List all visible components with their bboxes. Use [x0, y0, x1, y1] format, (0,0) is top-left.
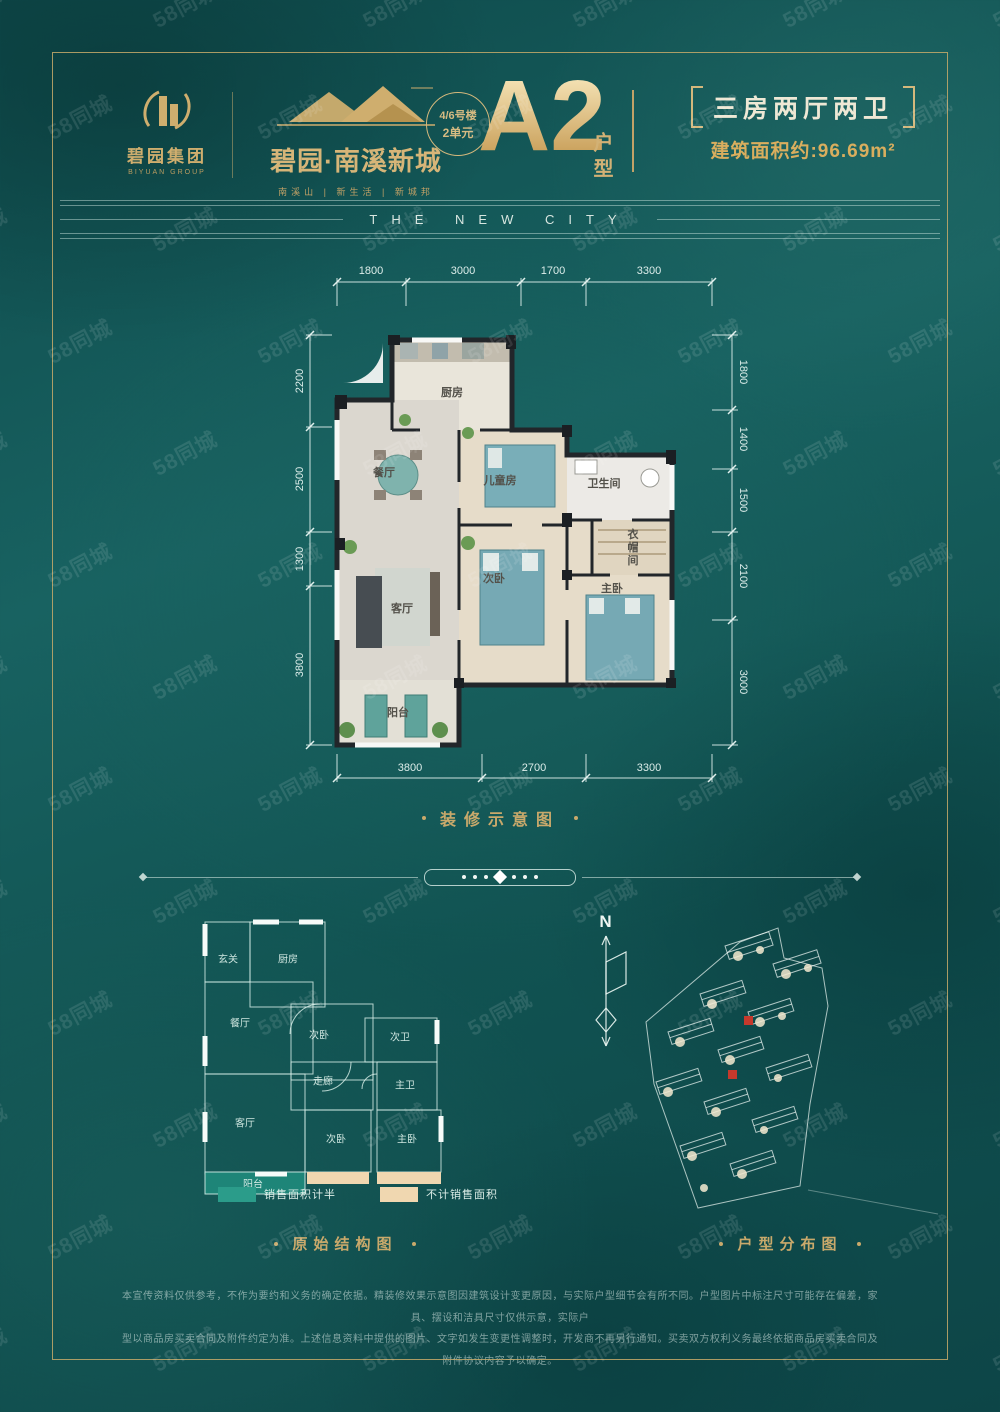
decorated-floor-plan: 1800 3000 1700 3300 2200 2500 1300 3800 … — [280, 250, 750, 810]
bracket-left — [691, 86, 703, 128]
project-tagline: 南溪山 | 新生活 | 新城邦 — [244, 185, 468, 198]
ornament-divider — [140, 866, 860, 888]
legend-label-non-sale: 不计销售面积 — [426, 1186, 498, 1202]
disclaimer: 本宣传资料仅供参考，不作为要约和义务的确定依据。精装修效果示意图因建筑设计变更原… — [118, 1286, 882, 1372]
site-plan — [640, 924, 940, 1216]
developer-logo-icon — [139, 82, 195, 138]
dim-right-3: 1500 — [737, 488, 749, 512]
struct-label-bedroom-bottom: 次卧 — [326, 1131, 346, 1146]
mountains-icon — [271, 80, 441, 132]
bracket-right — [903, 86, 915, 128]
decorated-plan-caption: 装修示意图 — [0, 806, 1000, 830]
legend-item-non-sale: 不计销售面积 — [380, 1186, 498, 1202]
site-plan-caption: 户型分布图 — [640, 1233, 940, 1254]
legend-swatch-half-sale — [218, 1187, 256, 1202]
dim-right-4: 2100 — [737, 564, 749, 588]
room-label-dining: 餐厅 — [373, 464, 395, 480]
room-configuration: 三房两厅两卫 — [713, 89, 893, 125]
highlighted-units — [728, 1016, 753, 1079]
dim-top-1: 1800 — [359, 265, 383, 277]
plan-code-label: 户型 — [594, 132, 616, 184]
dim-right-1: 1800 — [737, 360, 749, 384]
dim-bottom-2: 2700 — [522, 762, 546, 774]
floor-plan-graphic — [280, 250, 750, 810]
room-label-balcony: 阳台 — [387, 704, 409, 720]
entry-door-arc — [343, 343, 383, 383]
banner-strip: THE NEW CITY — [60, 200, 940, 239]
struct-label-bedroom-mid: 次卧 — [309, 1027, 329, 1042]
struct-label-master: 主卧 — [397, 1131, 417, 1146]
structure-plan-caption-text: 原始结构图 — [292, 1233, 397, 1254]
dim-right-5: 3000 — [737, 670, 749, 694]
non-sale-areas — [307, 1172, 441, 1184]
dim-bottom-1: 3800 — [398, 762, 422, 774]
room-label-bathroom: 卫生间 — [588, 475, 621, 491]
struct-label-corridor: 走廊 — [313, 1073, 333, 1088]
room-label-kitchen: 厨房 — [441, 384, 463, 400]
decorated-plan-caption-text: 装修示意图 — [440, 806, 560, 830]
divider-capsule — [424, 869, 576, 886]
area-legend: 销售面积计半 不计销售面积 — [218, 1186, 498, 1202]
struct-label-dining: 餐厅 — [230, 1015, 250, 1030]
unit-number: 2单元 — [443, 124, 474, 141]
developer-name-en: BIYUAN GROUP — [108, 169, 226, 176]
legend-swatch-non-sale — [380, 1187, 418, 1202]
site-tree-blobs — [663, 946, 812, 1192]
room-label-master-bedroom: 主卧 — [601, 580, 623, 596]
disclaimer-line-2: 型以商品房买卖合同及附件约定为准。上述信息资料中提供的图片、文字如发生变更性调整… — [118, 1329, 882, 1372]
site-plan-graphic — [640, 924, 940, 1216]
struct-label-kitchen: 厨房 — [278, 951, 298, 966]
legend-label-half-sale: 销售面积计半 — [264, 1186, 336, 1202]
struct-label-bath-master: 主卫 — [395, 1077, 415, 1092]
buildings — [656, 932, 821, 1177]
header: 碧园集团 BIYUAN GROUP 碧园·南溪新城 南溪山 | 新生活 | 新城… — [60, 80, 940, 198]
dim-left-3: 1300 — [294, 547, 306, 571]
room-label-second-bedroom: 次卧 — [483, 570, 505, 586]
dim-right-2: 1400 — [737, 427, 749, 451]
plan-spec: 三房两厅两卫 建筑面积约:96.69m² — [656, 84, 950, 163]
struct-label-bath-second: 次卫 — [390, 1029, 410, 1044]
header-divider-1 — [232, 92, 233, 178]
structure-plan: 玄关 厨房 餐厅 次卧 次卫 走廊 主卫 客厅 次卧 主卧 阳台 — [195, 916, 455, 1201]
north-indicator: N — [583, 912, 629, 1052]
struct-label-living: 客厅 — [235, 1115, 255, 1130]
north-arrow-icon — [583, 932, 629, 1050]
diamond-ornament — [493, 870, 507, 884]
structure-plan-caption: 原始结构图 — [195, 1233, 495, 1254]
disclaimer-line-1: 本宣传资料仅供参考，不作为要约和义务的确定依据。精装修效果示意图因建筑设计变更原… — [118, 1286, 882, 1329]
dim-left-1: 2200 — [294, 369, 306, 393]
dim-left-4: 3800 — [294, 653, 306, 677]
dim-top-4: 3300 — [637, 265, 661, 277]
north-label: N — [583, 912, 629, 932]
dim-left-2: 2500 — [294, 467, 306, 491]
dim-top-3: 1700 — [541, 265, 565, 277]
developer-logo: 碧园集团 BIYUAN GROUP — [108, 82, 226, 176]
room-label-living: 客厅 — [391, 600, 413, 616]
building-number: 4/6号楼 — [439, 107, 476, 123]
room-label-kids-room: 儿童房 — [484, 472, 517, 488]
struct-label-entry: 玄关 — [218, 951, 238, 966]
site-plan-caption-text: 户型分布图 — [737, 1233, 842, 1254]
built-area: 建筑面积约:96.69m² — [656, 136, 950, 163]
banner-text: THE NEW CITY — [369, 212, 630, 227]
dim-bottom-3: 3300 — [637, 762, 661, 774]
developer-name: 碧园集团 — [108, 142, 226, 167]
legend-item-half-sale: 销售面积计半 — [218, 1186, 336, 1202]
dim-top-2: 3000 — [451, 265, 475, 277]
room-label-cloakroom: 衣帽间 — [624, 529, 640, 568]
header-divider-2 — [632, 90, 634, 172]
